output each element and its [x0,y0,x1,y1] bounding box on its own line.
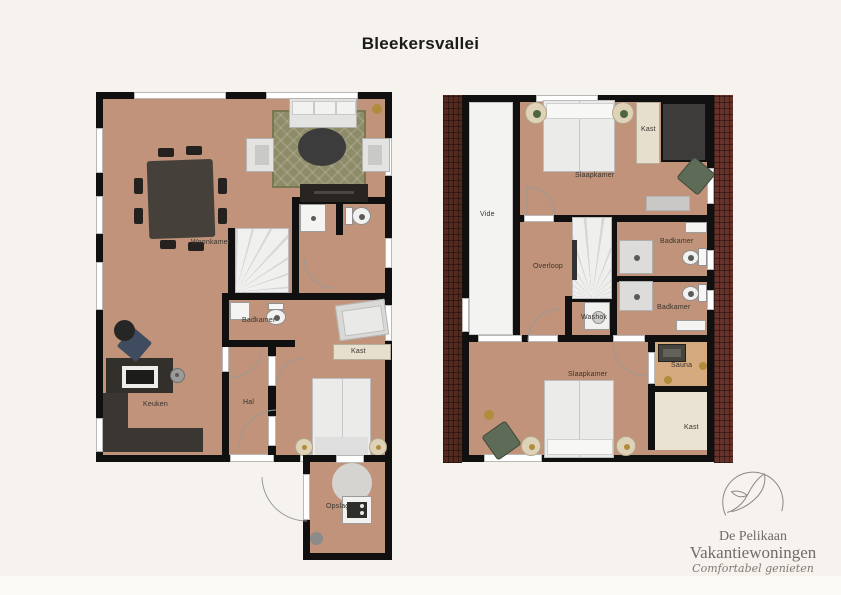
lamp [376,445,381,450]
sink [300,204,326,232]
decor-dot [484,410,494,420]
nightstand [525,102,547,124]
plant [533,110,541,118]
room-label-keuken: Keuken [143,401,168,408]
walk-in-closet [661,102,707,162]
room-label-slaapkamer-bottom: Slaapkamer [568,371,607,378]
kitchen-sink [170,368,185,383]
staircase [572,217,612,299]
door-gap [268,356,276,386]
stair-rail [572,240,577,280]
room-label-slaapkamer-top: Slaapkamer [575,172,614,179]
wall [292,197,299,293]
armchair [246,138,274,172]
dining-table [147,159,216,239]
mop-bucket [310,532,323,545]
decor-dot [372,104,382,114]
room-label-hal: Hal [243,399,254,406]
dial [360,511,364,515]
logo-line2: Vakantiewoningen [668,544,838,562]
sauna-handle [664,376,672,384]
stove [126,370,154,384]
shower [619,281,653,311]
staircase [235,228,289,293]
nightstand [369,438,387,456]
dresser [646,196,690,211]
bathtub [335,299,390,342]
room-label-overloop: Overloop [533,263,563,270]
roof-brick-left [443,95,462,463]
tv [314,191,354,194]
logo-tagline: Comfortabel genieten [668,562,838,576]
room-label-badkamer-bottom: Badkamer [657,304,691,311]
door-gap [303,474,310,520]
lamp [624,444,630,450]
dial [360,504,364,508]
nightstand [616,436,636,456]
wall [565,296,572,342]
sauna-handle [699,362,707,370]
kast-floor [655,392,707,450]
room-label-kast-bottom: Kast [684,424,699,431]
dining-chair [134,208,143,224]
window [707,290,714,310]
pillows [546,103,614,119]
dining-chair [158,148,174,157]
wall [222,293,392,300]
wall [222,300,229,455]
washing-machine [342,496,372,524]
shower-drain [634,294,640,300]
lamp [529,444,535,450]
armchair-seat [255,145,269,165]
sofa-cushion [292,101,314,115]
window [707,250,714,270]
sofa [289,98,357,128]
kitchen-island [106,358,173,393]
room-label-badkamer-top: Badkamer [660,238,694,245]
window [96,128,103,173]
plant [620,110,628,118]
window [462,298,469,332]
dining-chair [134,178,143,194]
roof-brick-right [714,95,733,463]
sofa-cushion [336,101,356,115]
sink-drain [175,373,179,377]
door-gap [268,416,276,446]
pillows [547,439,613,455]
room-label-sauna: Sauna [671,362,692,369]
side-table [114,320,135,341]
page-title: Bleekersvallei [0,34,841,54]
toilet-bowl [682,250,699,265]
toilet-tank [698,248,707,266]
company-logo: De Pelikaan Vakantiewoningen Comfortabel… [668,468,838,580]
dining-chair [160,240,176,249]
room-label-badkamer: Badkamer [242,317,276,324]
room-label-washok: Washok [581,314,607,321]
toilet-drain [688,291,694,297]
window [96,262,103,310]
toilet-bowl [682,286,699,301]
nightstand [521,436,541,456]
bed [312,378,371,458]
sink-drain [311,216,316,221]
armchair [362,138,390,172]
tv-unit [300,184,368,202]
footer-band [0,576,841,595]
lamp [302,445,307,450]
door-gap [648,352,655,384]
room-label-kast: Kast [351,348,366,355]
bed [544,380,614,458]
door-gap [528,335,558,342]
window [134,92,226,99]
bed [543,100,615,172]
toilet-drain [359,214,365,220]
door-gap [613,335,645,342]
room-label-vide: Vide [480,211,495,218]
stove-frame [122,366,158,388]
floorplan-page: Bleekersvallei [0,0,841,595]
door-gap [524,215,554,222]
dining-chair [186,146,202,155]
door-gap [336,455,364,463]
window [385,238,392,268]
toilet-drain [688,255,694,261]
dining-chair [218,208,227,224]
door-gap [222,344,229,372]
sofa-cushion [314,101,336,115]
kitchen-counter-bottom [103,428,203,452]
washing-machine-door [347,502,367,518]
bathtub-inner [342,305,385,336]
coffee-table [298,128,346,166]
room-label-woonkamer: Woonkamer [191,239,230,246]
toilet-bowl [352,207,371,225]
window [96,196,103,234]
sauna-coals [663,349,681,357]
pelican-icon [708,468,798,524]
toilet-tank [698,284,707,302]
wall [336,197,343,235]
shower-drain [634,255,640,261]
armchair-seat [368,145,382,165]
bed-foot [315,437,368,455]
window [478,335,522,342]
front-door [230,454,274,462]
window [96,418,103,452]
room-label-kast-top: Kast [641,126,656,133]
wall [222,340,295,347]
sink [676,320,706,331]
wall [513,102,520,342]
room-label-opslag: Opslag [326,503,349,510]
nightstand [295,438,313,456]
nightstand [612,102,634,124]
dining-chair [218,178,227,194]
shower [619,240,653,274]
sauna-stove [658,344,686,362]
closet [636,102,660,164]
vide-void [469,102,513,335]
logo-line1: De Pelikaan [668,529,838,544]
sink [685,222,707,233]
